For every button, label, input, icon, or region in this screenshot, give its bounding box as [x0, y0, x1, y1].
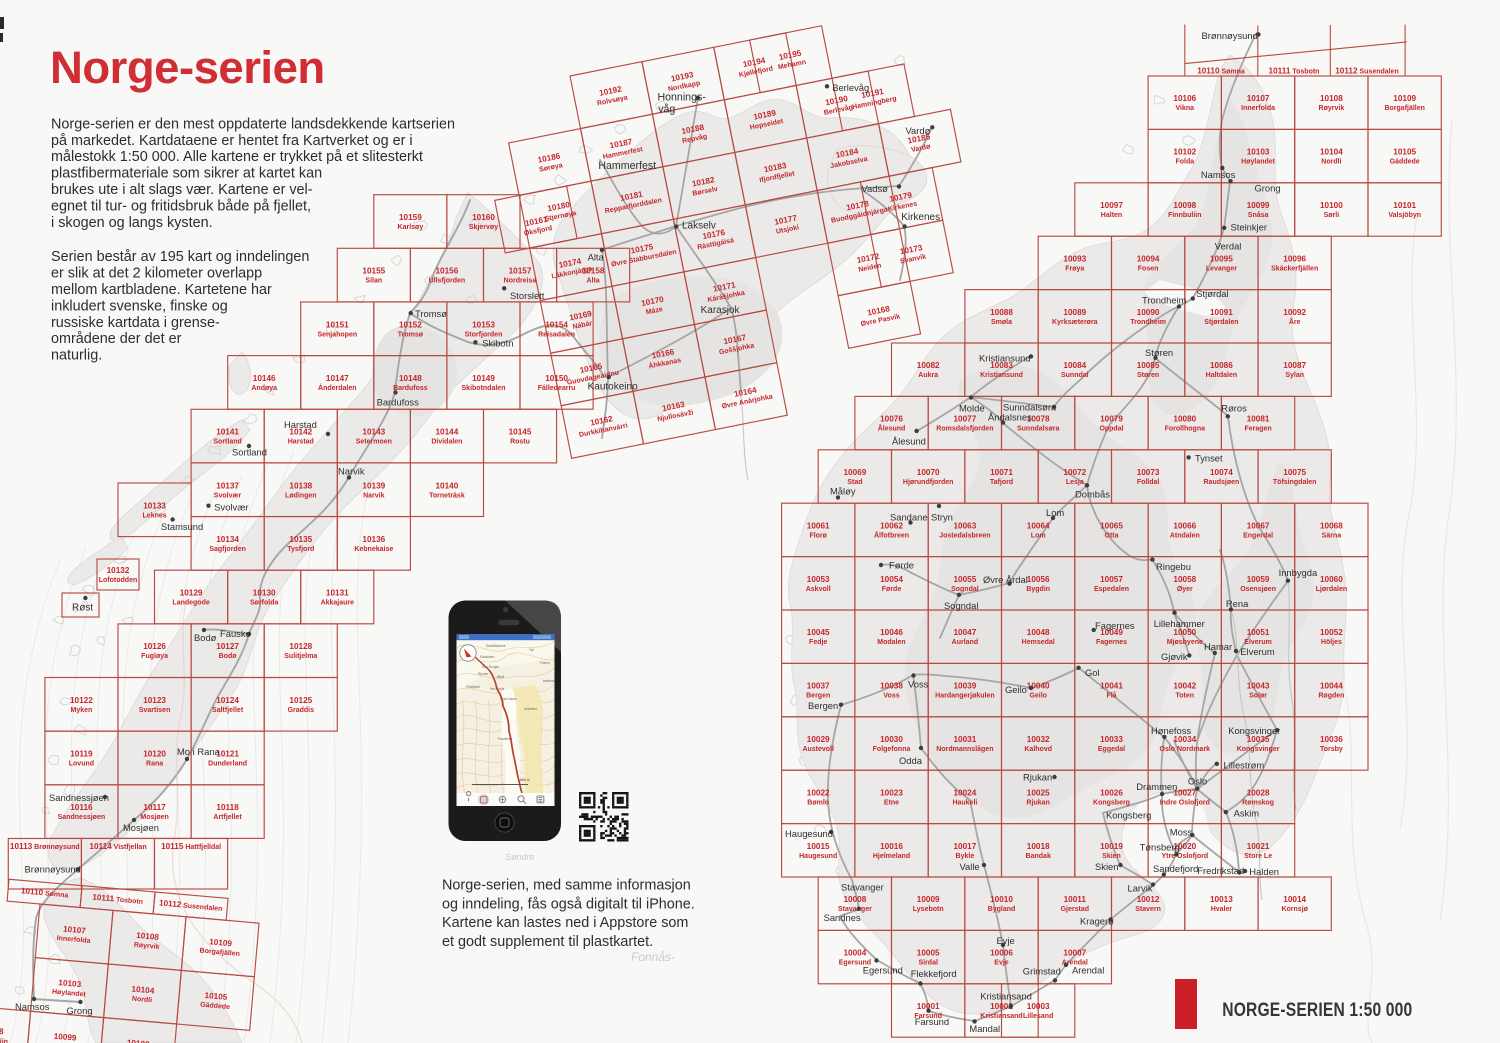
svg-text:10053: 10053: [807, 575, 830, 584]
svg-text:10154: 10154: [545, 320, 568, 329]
svg-text:Ster-Sorgen: Ster-Sorgen: [482, 665, 499, 669]
svg-text:10076: 10076: [880, 415, 903, 424]
svg-text:10030: 10030: [880, 735, 903, 744]
svg-text:Leknes: Leknes: [143, 512, 167, 519]
svg-text:10035: 10035: [1247, 735, 1270, 744]
svg-text:10067: 10067: [1247, 521, 1270, 530]
svg-text:10101: 10101: [1393, 201, 1416, 210]
svg-text:Farsund: Farsund: [915, 1016, 949, 1027]
svg-text:Hønefoss: Hønefoss: [1151, 725, 1191, 736]
svg-text:10066: 10066: [1173, 521, 1196, 530]
svg-text:10114 Vistfjellan: 10114 Vistfjellan: [89, 842, 146, 851]
svg-text:Sandnessjøen: Sandnessjøen: [49, 792, 109, 803]
svg-text:Ullsfjorden: Ullsfjorden: [429, 278, 466, 285]
svg-text:Røyrvik: Røyrvik: [1319, 105, 1345, 112]
svg-text:Tysfjord: Tysfjord: [287, 546, 314, 553]
svg-text:10064: 10064: [1027, 521, 1050, 530]
svg-text:Steinkjer: Steinkjer: [1231, 222, 1267, 233]
svg-text:Fedje: Fedje: [809, 639, 827, 646]
svg-text:Vikna: Vikna: [1176, 105, 1195, 112]
svg-text:10089: 10089: [1063, 308, 1086, 317]
svg-text:Narvik: Narvik: [363, 492, 385, 499]
svg-text:Valle: Valle: [960, 861, 980, 872]
svg-text:Akselflod: Akselflod: [524, 707, 537, 711]
svg-text:Førde: Førde: [882, 586, 902, 593]
svg-text:10112 Susendalen: 10112 Susendalen: [1335, 67, 1399, 76]
svg-text:områdene der det er: områdene der det er: [51, 331, 182, 347]
svg-text:Fugløya: Fugløya: [141, 653, 168, 660]
svg-text:Kongsberg: Kongsberg: [1106, 810, 1151, 821]
svg-text:Sandane: Sandane: [890, 512, 928, 523]
svg-text:Artfjellet: Artfjellet: [213, 814, 242, 821]
svg-text:Fuemu: Fuemu: [540, 661, 550, 665]
svg-text:10115 Hattfjelldal: 10115 Hattfjelldal: [161, 842, 221, 851]
svg-text:10015: 10015: [807, 842, 830, 851]
svg-text:Särna: Särna: [1322, 532, 1342, 539]
svg-text:Fredrikstad: Fredrikstad: [1197, 865, 1244, 876]
svg-text:Støren: Støren: [1137, 372, 1159, 379]
svg-text:inkludert svenske, finske og: inkludert svenske, finske og: [51, 298, 228, 314]
svg-text:10058: 10058: [1173, 575, 1196, 584]
svg-text:10046: 10046: [880, 628, 903, 637]
svg-text:naturlig.: naturlig.: [51, 348, 102, 364]
svg-text:Lofotodden: Lofotodden: [99, 577, 138, 584]
svg-text:10157: 10157: [509, 267, 532, 276]
svg-text:Sortland: Sortland: [232, 447, 267, 458]
svg-text:Sørfolda: Sørfolda: [250, 600, 278, 607]
svg-text:Mo i Rana: Mo i Rana: [177, 746, 221, 757]
svg-text:Mandal: Mandal: [969, 1023, 1000, 1034]
svg-text:Geilo: Geilo: [1005, 684, 1027, 695]
svg-text:10144: 10144: [436, 428, 459, 437]
svg-text:Rjukan: Rjukan: [1027, 799, 1050, 806]
svg-text:Serien består av 195 kart og i: Serien består av 195 kart og inndelingen: [51, 249, 309, 265]
svg-text:Tromsø: Tromsø: [415, 308, 447, 319]
svg-text:10117: 10117: [143, 803, 166, 812]
svg-text:Rena: Rena: [1226, 598, 1249, 609]
svg-text:Skjervøy: Skjervøy: [469, 224, 498, 231]
svg-text:Rjemla: Rjemla: [478, 672, 488, 676]
svg-text:Innbygda: Innbygda: [1279, 567, 1318, 578]
svg-text:Grimstad: Grimstad: [1023, 966, 1061, 977]
svg-text:Rana: Rana: [146, 761, 163, 768]
svg-text:Frøya: Frøya: [1065, 265, 1084, 272]
svg-text:10062: 10062: [880, 521, 903, 530]
svg-text:10082: 10082: [917, 361, 940, 370]
svg-text:10028: 10028: [1247, 788, 1270, 797]
svg-text:Kalhovd: Kalhovd: [1024, 746, 1052, 753]
svg-text:Aurland: Aurland: [952, 639, 978, 646]
svg-text:Tafjord: Tafjord: [990, 479, 1013, 486]
svg-text:Geilo: Geilo: [1029, 693, 1047, 700]
svg-text:10018: 10018: [1027, 842, 1050, 851]
svg-text:10100: 10100: [1320, 201, 1343, 210]
svg-text:10113 Brønnøysund: 10113 Brønnøysund: [10, 842, 80, 851]
svg-text:Stavanger: Stavanger: [841, 882, 884, 893]
svg-text:10071: 10071: [990, 468, 1013, 477]
svg-text:og inndeling, fås også digital: og inndeling, fås også digitalt til iPho…: [442, 896, 695, 912]
svg-text:10056: 10056: [1027, 575, 1050, 584]
svg-text:10130: 10130: [253, 589, 276, 598]
svg-text:Voss: Voss: [883, 693, 899, 700]
svg-text:10047: 10047: [954, 628, 977, 637]
svg-text:i skogen og langs kysten.: i skogen og langs kysten.: [51, 215, 213, 231]
svg-text:10148: 10148: [399, 374, 422, 383]
svg-text:10159: 10159: [399, 213, 422, 222]
svg-text:Smøla: Smøla: [991, 319, 1012, 326]
svg-text:Lom: Lom: [1031, 532, 1046, 539]
svg-text:Reisadalen: Reisadalen: [538, 331, 575, 338]
svg-text:er slik at det 2 kilometer ove: er slik at det 2 kilometer overlapp: [51, 265, 262, 281]
svg-text:Solør: Solør: [1249, 693, 1267, 700]
svg-text:10090: 10090: [1137, 308, 1160, 317]
svg-text:Bandak: Bandak: [1026, 853, 1051, 860]
svg-text:10084: 10084: [1063, 361, 1086, 370]
svg-text:Haltdalen: Haltdalen: [1206, 372, 1238, 379]
svg-text:Trondheim: Trondheim: [1142, 295, 1187, 306]
svg-text:10122: 10122: [70, 696, 93, 705]
svg-text:Bykle: Bykle: [956, 853, 975, 860]
svg-text:Namsos: Namsos: [1201, 169, 1236, 180]
svg-text:Feragen: Feragen: [1244, 426, 1271, 433]
svg-text:Stavern: Stavern: [1135, 906, 1161, 913]
svg-text:10139: 10139: [362, 481, 385, 490]
svg-text:Hardangerjøkulen: Hardangerjøkulen: [935, 693, 995, 700]
svg-text:Innerfolda: Innerfolda: [1241, 105, 1275, 112]
svg-text:Skibotn: Skibotn: [482, 338, 513, 349]
svg-text:Sirdal: Sirdal: [918, 960, 938, 967]
svg-text:Silan: Silan: [365, 278, 382, 285]
svg-text:Gjøvik: Gjøvik: [1161, 651, 1188, 662]
svg-text:Gol: Gol: [1085, 667, 1100, 678]
svg-text:10014: 10014: [1283, 895, 1306, 904]
svg-text:10070: 10070: [917, 468, 940, 477]
svg-text:Valsjöbyn: Valsjöbyn: [1388, 212, 1421, 219]
svg-text:Folgefonna: Folgefonna: [873, 746, 911, 753]
svg-text:10125: 10125: [289, 696, 312, 705]
svg-text:Ålesund: Ålesund: [878, 424, 906, 433]
svg-text:10050: 10050: [1173, 628, 1196, 637]
svg-text:Mosjøen: Mosjøen: [123, 822, 159, 833]
svg-text:Storslett: Storslett: [510, 290, 545, 301]
svg-text:Sandnes: Sandnes: [824, 912, 861, 923]
svg-text:Kyrksæterøra: Kyrksæterøra: [1052, 319, 1098, 326]
svg-text:Røros: Røros: [1221, 403, 1247, 414]
svg-text:Stryn: Stryn: [931, 512, 953, 523]
svg-text:russiske kartdata i grense-: russiske kartdata i grense-: [51, 315, 220, 331]
svg-text:Setermoen: Setermoen: [356, 439, 392, 446]
svg-text:Bardufoss: Bardufoss: [377, 397, 420, 408]
svg-text:10007: 10007: [1063, 949, 1086, 958]
svg-text:Bodø: Bodø: [219, 653, 238, 660]
svg-text:Torsby: Torsby: [1320, 746, 1343, 753]
svg-text:10095: 10095: [1210, 254, 1233, 263]
svg-text:10051: 10051: [1247, 628, 1270, 637]
svg-text:10077: 10077: [954, 415, 977, 424]
svg-text:10057: 10057: [1100, 575, 1123, 584]
svg-text:Egersund: Egersund: [863, 964, 903, 975]
svg-text:Engerdal: Engerdal: [1243, 532, 1273, 539]
svg-text:Evje: Evje: [994, 960, 1009, 967]
svg-text:Oppdal: Oppdal: [1099, 426, 1123, 433]
svg-text:et godt supplement til plastka: et godt supplement til plastkartet.: [442, 934, 653, 950]
svg-text:10024: 10024: [954, 788, 977, 797]
svg-text:10099: 10099: [1247, 201, 1270, 210]
svg-text:Svartisen: Svartisen: [139, 707, 171, 714]
svg-text:10158: 10158: [582, 267, 605, 276]
svg-text:10012: 10012: [1137, 895, 1160, 904]
svg-text:Harstad: Harstad: [288, 439, 314, 446]
svg-text:10025: 10025: [1027, 788, 1050, 797]
svg-text:10132: 10132: [107, 566, 130, 575]
svg-text:10075: 10075: [1283, 468, 1306, 477]
svg-text:Harstad: Harstad: [284, 419, 317, 430]
svg-text:Røgden: Røgden: [1318, 693, 1344, 700]
svg-text:Sunndalsøra: Sunndalsøra: [1017, 426, 1060, 433]
svg-text:10010: 10010: [990, 895, 1013, 904]
svg-text:Landegode: Landegode: [172, 600, 209, 607]
svg-text:Fagernes: Fagernes: [1095, 620, 1135, 631]
svg-text:Nordmannslågen: Nordmannslågen: [936, 745, 993, 753]
svg-text:Karasjok: Karasjok: [701, 305, 741, 316]
svg-text:Norge-serien: Norge-serien: [50, 42, 325, 93]
svg-text:10152: 10152: [399, 320, 422, 329]
svg-text:10133: 10133: [143, 501, 166, 510]
svg-text:10055: 10055: [954, 575, 977, 584]
svg-text:10145: 10145: [509, 428, 532, 437]
svg-text:Evje: Evje: [997, 935, 1015, 946]
svg-text:Sortland: Sortland: [213, 439, 241, 446]
svg-text:Hamar: Hamar: [1204, 641, 1232, 652]
svg-text:Hammerfest: Hammerfest: [598, 160, 656, 172]
svg-text:Romsdalsfjorden: Romsdalsfjorden: [936, 426, 993, 433]
svg-text:Austevoll: Austevoll: [802, 746, 834, 753]
svg-text:Halten: Halten: [1101, 212, 1122, 219]
svg-text:Folda: Folda: [1175, 159, 1194, 166]
svg-text:Tønsberg: Tønsberg: [1140, 842, 1180, 853]
svg-text:Tynset: Tynset: [1195, 453, 1223, 464]
svg-text:Dunderland: Dunderland: [208, 761, 247, 768]
svg-text:10111 Tosbotn: 10111 Tosbotn: [1269, 67, 1320, 76]
svg-text:Øyer: Øyer: [1177, 586, 1193, 593]
svg-text:Lillehammer: Lillehammer: [1154, 618, 1205, 629]
svg-text:Kornsjø: Kornsjø: [1281, 906, 1308, 913]
svg-text:10156: 10156: [436, 267, 459, 276]
svg-text:Levanger: Levanger: [1206, 265, 1237, 272]
svg-text:10039: 10039: [954, 682, 977, 691]
svg-text:10042: 10042: [1173, 682, 1196, 691]
svg-text:10054: 10054: [880, 575, 903, 584]
svg-text:10151: 10151: [326, 320, 349, 329]
svg-text:10092: 10092: [1283, 308, 1306, 317]
svg-text:Lakselv: Lakselv: [682, 221, 716, 232]
svg-text:10097: 10097: [1100, 201, 1123, 210]
svg-text:10021: 10021: [1247, 842, 1270, 851]
svg-text:10085: 10085: [1137, 361, 1160, 370]
svg-text:Torneträsk: Torneträsk: [429, 492, 465, 499]
svg-text:Sandnessjøen: Sandnessjøen: [58, 814, 105, 821]
svg-text:karfiend: karfiend: [543, 679, 555, 683]
svg-text:10123: 10123: [143, 696, 166, 705]
svg-text:Sagfjorden: Sagfjorden: [209, 546, 246, 553]
svg-text:Odda: Odda: [899, 755, 923, 766]
svg-text:Verdal: Verdal: [1215, 240, 1242, 251]
svg-text:Bodø: Bodø: [194, 632, 217, 643]
svg-text:Höljes: Höljes: [1321, 639, 1342, 646]
svg-text:NORGE-SERIEN 1:50 000: NORGE-SERIEN 1:50 000: [1222, 998, 1412, 1020]
svg-text:Borgafjällen: Borgafjällen: [1384, 105, 1424, 112]
svg-text:Snåsa: Snåsa: [1248, 211, 1269, 219]
svg-text:Flekkefjord: Flekkefjord: [911, 968, 957, 979]
svg-text:10079: 10079: [1100, 415, 1123, 424]
svg-text:10134: 10134: [216, 535, 239, 544]
svg-text:Ringebu: Ringebu: [1156, 561, 1191, 572]
svg-text:Folldal: Folldal: [1137, 479, 1160, 486]
svg-text:Arendal: Arendal: [1072, 965, 1104, 976]
svg-text:10093: 10093: [1063, 254, 1086, 263]
svg-text:Kristiansand: Kristiansand: [980, 991, 1032, 1002]
svg-text:Sulitjelma: Sulitjelma: [284, 653, 317, 660]
svg-text:Brønnøysund: Brønnøysund: [1202, 30, 1258, 41]
svg-text:10118: 10118: [216, 803, 239, 812]
svg-text:10072: 10072: [1063, 468, 1086, 477]
svg-text:10009: 10009: [917, 895, 940, 904]
svg-text:10110 Sømna: 10110 Sømna: [1197, 67, 1245, 76]
svg-text:10098: 10098: [1173, 201, 1196, 210]
svg-text:Senjahopen: Senjahopen: [317, 331, 357, 338]
svg-text:10080: 10080: [1173, 415, 1196, 424]
svg-text:Karlsøy: Karlsøy: [398, 224, 424, 231]
svg-text:egnet til tur- og fritidsbruk: egnet til tur- og fritidsbruk både på fj…: [51, 199, 311, 215]
svg-text:Fosen: Fosen: [1138, 265, 1159, 272]
svg-text:10037: 10037: [807, 682, 830, 691]
svg-text:Honnings-: Honnings-: [658, 92, 707, 104]
svg-text:Kautokeino: Kautokeino: [588, 382, 638, 393]
svg-text:10063: 10063: [954, 521, 977, 530]
svg-text:Stjørdalen: Stjørdalen: [1204, 319, 1238, 326]
svg-text:Måløy: Måløy: [830, 486, 856, 497]
svg-text:10107: 10107: [1247, 94, 1270, 103]
svg-text:Askim: Askim: [1234, 808, 1260, 819]
svg-text:Skibotndalen: Skibotndalen: [462, 385, 506, 392]
svg-text:Jostedalsbreen: Jostedalsbreen: [939, 532, 990, 539]
svg-text:10031: 10031: [954, 735, 977, 744]
svg-text:10131: 10131: [326, 589, 349, 598]
svg-text:Florø: Florø: [809, 532, 827, 539]
svg-text:Lesja: Lesja: [1066, 479, 1084, 486]
svg-text:Norge-serien er den mest oppda: Norge-serien er den mest oppdaterte land…: [51, 116, 455, 132]
svg-text:10041: 10041: [1100, 682, 1123, 691]
svg-text:Kragerø: Kragerø: [1080, 916, 1114, 927]
svg-text:Mjøsbyene: Mjøsbyene: [1167, 639, 1203, 646]
svg-text:10140: 10140: [436, 481, 459, 490]
svg-text:Kongsberg: Kongsberg: [1093, 799, 1130, 806]
svg-text:Askvoll: Askvoll: [806, 586, 831, 593]
svg-text:10008: 10008: [844, 895, 867, 904]
svg-text:Rjukan: Rjukan: [1023, 772, 1052, 783]
svg-text:Stamsund: Stamsund: [161, 521, 203, 532]
svg-text:10128: 10128: [289, 642, 312, 651]
svg-text:målestokk 1:50 000. Alle karte: målestokk 1:50 000. Alle kartene er tryk…: [51, 149, 423, 165]
svg-text:Tromsø: Tromsø: [398, 331, 424, 338]
svg-text:Sunndal: Sunndal: [1061, 372, 1089, 379]
svg-text:Sandefjord: Sandefjord: [1153, 863, 1198, 874]
svg-text:Høylandet: Høylandet: [1241, 159, 1276, 166]
svg-text:10160: 10160: [472, 213, 495, 222]
svg-text:10141: 10141: [216, 428, 239, 437]
svg-text:10038: 10038: [880, 682, 903, 691]
svg-text:Tyri: Tyri: [529, 648, 534, 652]
svg-text:Grong: Grong: [1255, 183, 1281, 194]
svg-text:Haukeli: Haukeli: [952, 799, 977, 806]
svg-text:10019: 10019: [1100, 842, 1123, 851]
svg-text:på markedet. Kartdataene er he: på markedet. Kartdataene er hentet fra K…: [51, 133, 413, 149]
svg-text:Sogndal: Sogndal: [944, 600, 978, 611]
svg-text:10059: 10059: [1247, 575, 1270, 584]
svg-text:Svolvær: Svolvær: [214, 502, 248, 513]
svg-text:Ålfotbreen: Ålfotbreen: [874, 530, 909, 539]
svg-text:10116: 10116: [70, 803, 93, 812]
svg-text:Töfsingdalen: Töfsingdalen: [1273, 479, 1317, 486]
svg-text:10004: 10004: [844, 949, 867, 958]
svg-text:10087: 10087: [1283, 361, 1306, 370]
svg-text:Lødingen: Lødingen: [285, 492, 317, 499]
svg-text:Atndalen: Atndalen: [1170, 532, 1200, 539]
svg-text:10135: 10135: [289, 535, 312, 544]
svg-text:Hjørundfjorden: Hjørundfjorden: [903, 479, 954, 486]
svg-text:10086: 10086: [1210, 361, 1233, 370]
svg-text:Førde: Førde: [889, 560, 914, 571]
svg-text:Ytre Oslofjord: Ytre Oslofjord: [1161, 853, 1208, 860]
svg-text:Voss: Voss: [908, 679, 929, 690]
svg-text:Gäddede: Gäddede: [1390, 159, 1420, 166]
svg-text:Ålesund: Ålesund: [892, 436, 926, 447]
svg-text:Ljørdalen: Ljørdalen: [1316, 586, 1348, 593]
svg-text:Hvaler: Hvaler: [1211, 906, 1233, 913]
svg-text:Larvik: Larvik: [1128, 883, 1153, 894]
svg-text:Sogndal: Sogndal: [951, 586, 979, 593]
svg-text:Alta: Alta: [586, 278, 599, 285]
svg-text:10003: 10003: [1027, 1002, 1050, 1011]
svg-text:Narvik: Narvik: [338, 466, 365, 477]
svg-text:våg: våg: [658, 104, 675, 116]
svg-text:10023: 10023: [880, 788, 903, 797]
svg-text:plastfibermateriale som sikrer: plastfibermateriale som sikrer at kartet…: [51, 166, 322, 182]
svg-text:Søndre: Søndre: [505, 852, 535, 862]
svg-text:10155: 10155: [362, 267, 385, 276]
svg-text:Dividalen: Dividalen: [431, 439, 462, 446]
svg-text:Bergen: Bergen: [808, 700, 838, 711]
svg-text:10073: 10073: [1137, 468, 1160, 477]
svg-text:Kärsdalen: Kärsdalen: [480, 655, 495, 659]
svg-text:Brønnøysund: Brønnøysund: [25, 864, 81, 875]
svg-text:Fonnås-: Fonnås-: [631, 950, 675, 964]
svg-text:Bygland: Bygland: [988, 906, 1016, 913]
svg-text:Elverum: Elverum: [1240, 646, 1275, 657]
svg-text:Lillestrøm: Lillestrøm: [1224, 760, 1265, 771]
svg-text:10129: 10129: [180, 589, 203, 598]
svg-text:Toten: Toten: [1176, 693, 1195, 700]
svg-text:Vadsø: Vadsø: [862, 183, 889, 194]
svg-text:Skien: Skien: [1095, 861, 1118, 872]
svg-text:10052: 10052: [1320, 628, 1343, 637]
svg-text:Skäckerfjällen: Skäckerfjällen: [1271, 265, 1318, 272]
svg-text:10124: 10124: [216, 696, 239, 705]
svg-text:10068: 10068: [1320, 521, 1343, 530]
svg-text:Bømlo: Bømlo: [807, 799, 829, 806]
svg-text:10119: 10119: [70, 750, 93, 759]
svg-text:Halden: Halden: [1249, 866, 1279, 877]
